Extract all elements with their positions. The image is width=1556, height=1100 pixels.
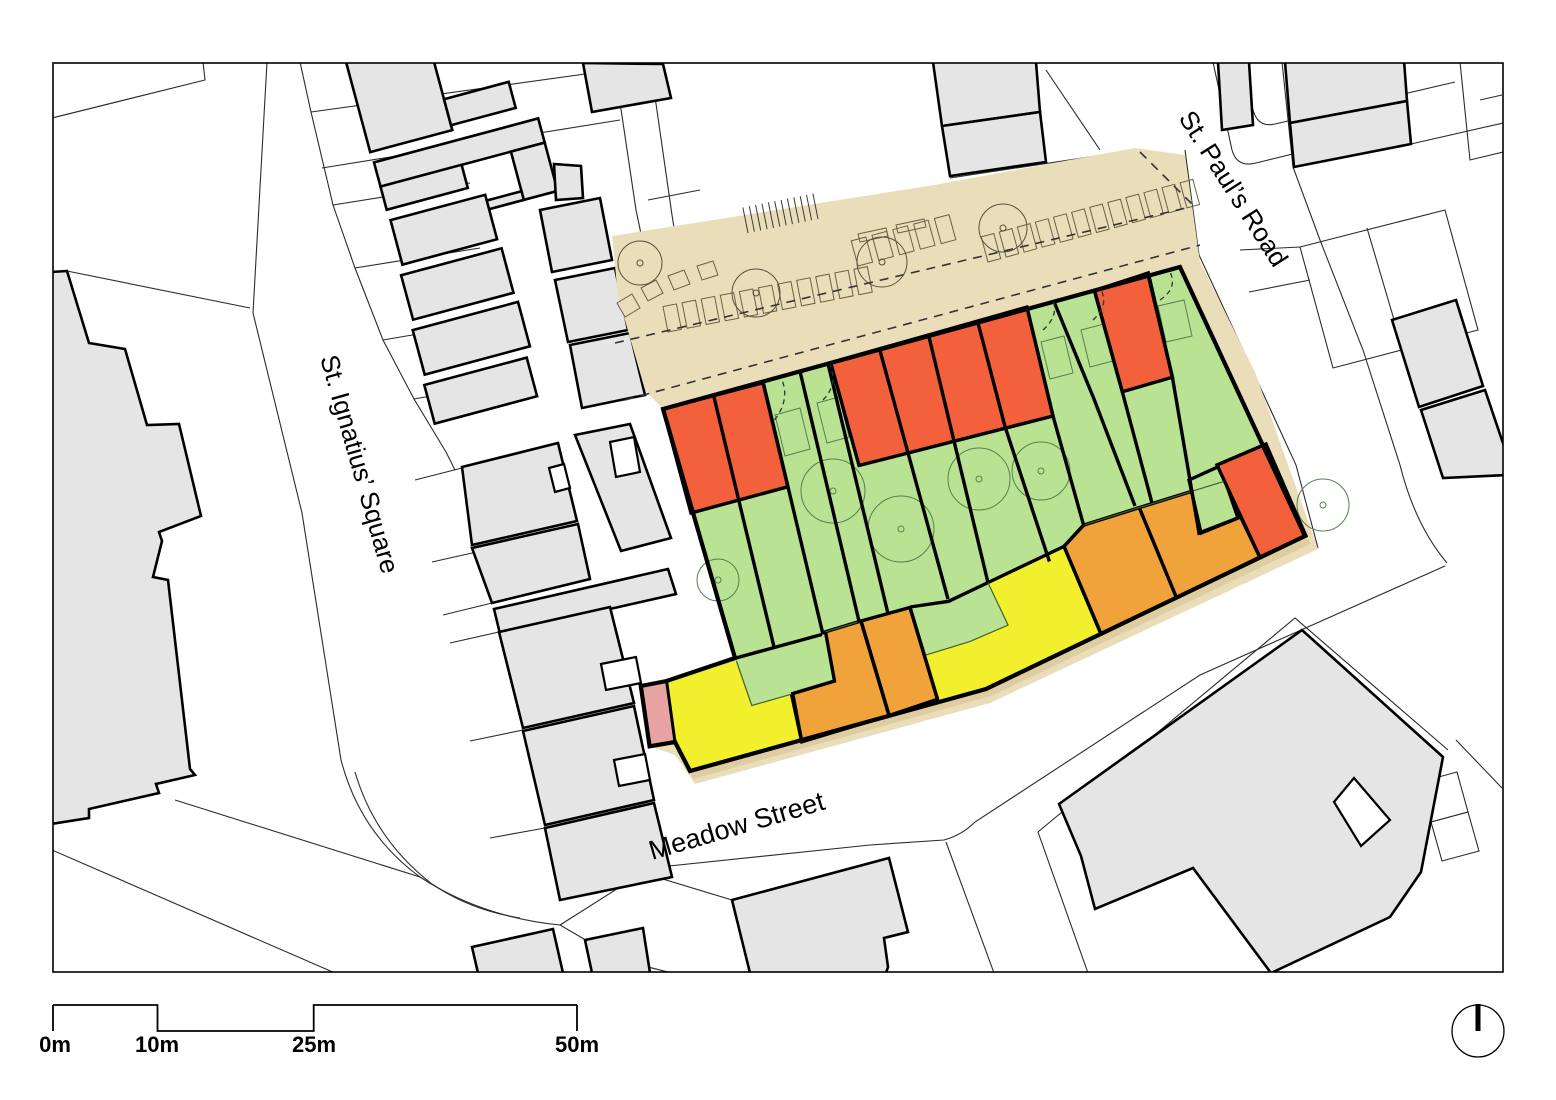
svg-text:0m: 0m: [39, 1032, 71, 1057]
svg-text:10m: 10m: [135, 1032, 179, 1057]
svg-text:25m: 25m: [292, 1032, 336, 1057]
svg-text:50m: 50m: [555, 1032, 599, 1057]
